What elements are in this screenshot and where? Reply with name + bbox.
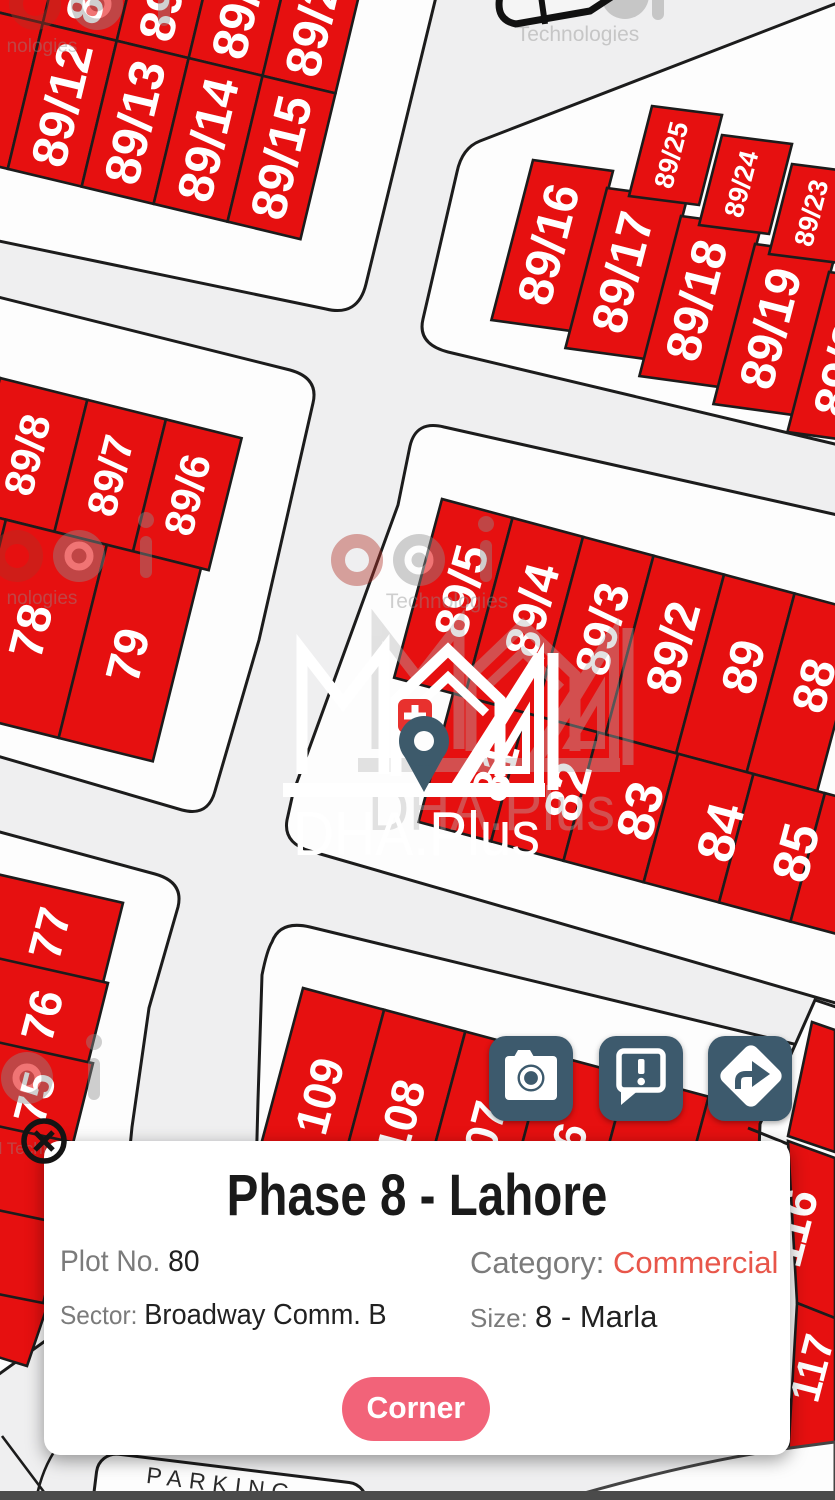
svg-text:Technologies: Technologies xyxy=(386,590,509,613)
svg-text:nologies: nologies xyxy=(7,36,78,57)
svg-text:nologies: nologies xyxy=(7,588,78,609)
svg-text:Technologies: Technologies xyxy=(517,23,640,46)
svg-text:DHA.Plus: DHA.Plus xyxy=(293,800,540,869)
